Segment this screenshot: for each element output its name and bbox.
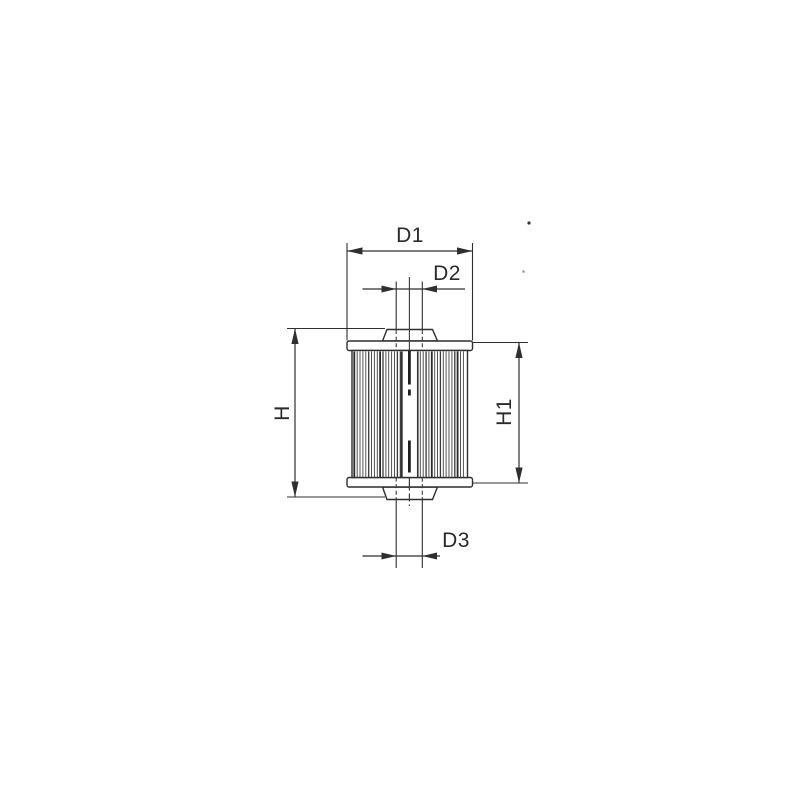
- d2-arrow-left-icon: [382, 286, 397, 293]
- drawing-canvas: D1 D2 D3 H H1: [0, 0, 800, 800]
- filter-element: [347, 277, 473, 506]
- label-d2: D2: [433, 262, 461, 286]
- h1-arrow-bottom-icon: [515, 468, 522, 484]
- h-arrow-top-icon: [291, 329, 298, 345]
- d3-arrow-right-icon: [422, 553, 437, 560]
- d2-arrow-right-icon: [422, 286, 437, 293]
- label-h1: H1: [493, 398, 517, 426]
- h1-arrow-top-icon: [515, 343, 522, 359]
- label-d1: D1: [396, 224, 424, 248]
- scan-speck-1: [527, 221, 530, 224]
- filter-drawing: [0, 0, 800, 800]
- label-d3: D3: [442, 529, 470, 553]
- dimension-d2: [363, 282, 466, 331]
- top-neck: [383, 330, 438, 342]
- dimension-d3: [363, 499, 441, 569]
- d1-arrow-right-icon: [457, 247, 473, 254]
- label-h: H: [271, 405, 295, 421]
- h-arrow-bottom-icon: [291, 482, 298, 498]
- d1-arrow-left-icon: [347, 247, 363, 254]
- scan-speck-2: [522, 270, 525, 273]
- d3-arrow-left-icon: [382, 553, 397, 560]
